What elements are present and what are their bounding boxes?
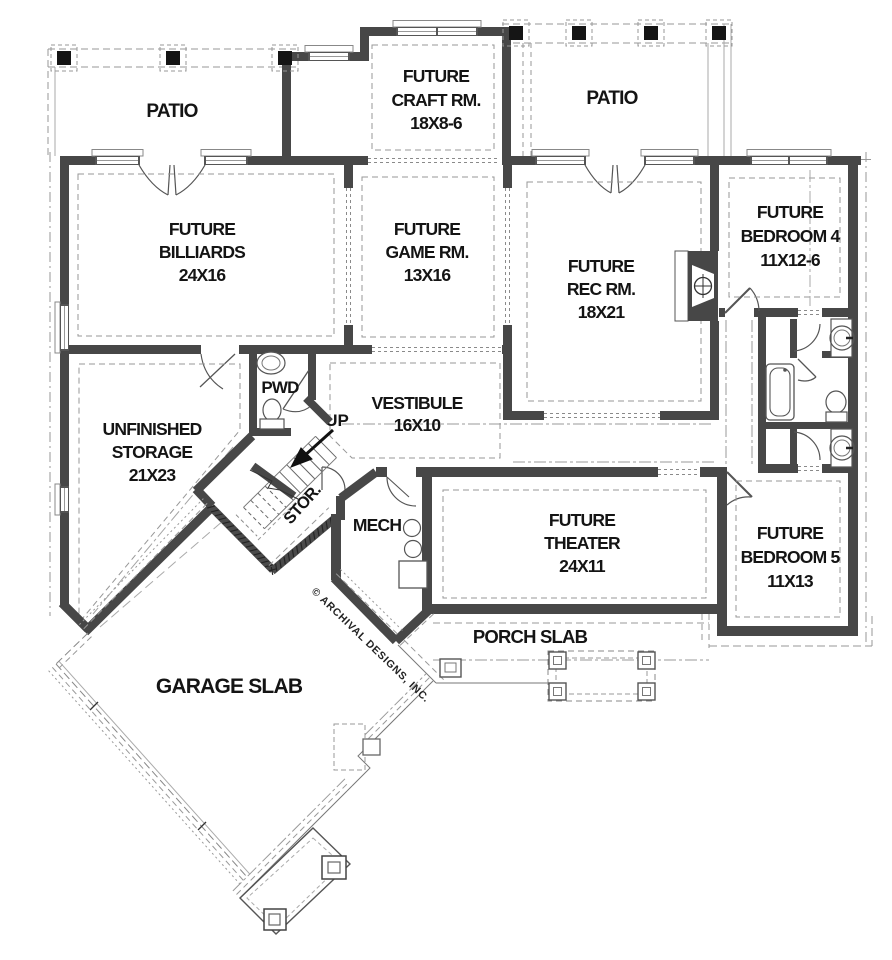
svg-text:GAME RM.: GAME RM. [385, 242, 468, 262]
svg-text:UNFINISHED: UNFINISHED [103, 419, 202, 439]
svg-text:PATIO: PATIO [146, 101, 197, 122]
svg-text:CRAFT RM.: CRAFT RM. [391, 90, 480, 110]
svg-text:24X16: 24X16 [179, 265, 227, 285]
svg-text:THEATER: THEATER [544, 533, 621, 553]
svg-text:13X16: 13X16 [404, 265, 452, 285]
svg-text:FUTURE: FUTURE [169, 219, 235, 239]
svg-text:FUTURE: FUTURE [403, 66, 469, 86]
svg-text:11X13: 11X13 [767, 571, 814, 591]
svg-text:REC RM.: REC RM. [567, 279, 635, 299]
svg-text:18X8-6: 18X8-6 [410, 113, 463, 133]
svg-text:MECH: MECH [353, 515, 401, 535]
svg-text:PWD: PWD [261, 378, 299, 397]
svg-text:FUTURE: FUTURE [394, 219, 460, 239]
svg-text:BEDROOM 4: BEDROOM 4 [741, 226, 841, 246]
svg-text:18X21: 18X21 [578, 302, 626, 322]
svg-text:PORCH SLAB: PORCH SLAB [473, 626, 588, 647]
svg-text:PATIO: PATIO [586, 88, 637, 109]
svg-text:VESTIBULE: VESTIBULE [371, 393, 462, 413]
svg-text:FUTURE: FUTURE [757, 523, 823, 543]
svg-text:21X23: 21X23 [129, 465, 177, 485]
svg-text:BILLIARDS: BILLIARDS [159, 242, 245, 262]
svg-text:16X10: 16X10 [394, 415, 442, 435]
svg-text:24X11: 24X11 [559, 556, 606, 576]
svg-text:BEDROOM 5: BEDROOM 5 [741, 547, 841, 567]
svg-text:FUTURE: FUTURE [757, 202, 823, 222]
svg-text:FUTURE: FUTURE [549, 510, 615, 530]
svg-text:GARAGE SLAB: GARAGE SLAB [156, 675, 303, 698]
svg-text:11X12-6: 11X12-6 [760, 250, 821, 270]
svg-text:STORAGE: STORAGE [112, 442, 193, 462]
svg-text:FUTURE: FUTURE [568, 256, 634, 276]
